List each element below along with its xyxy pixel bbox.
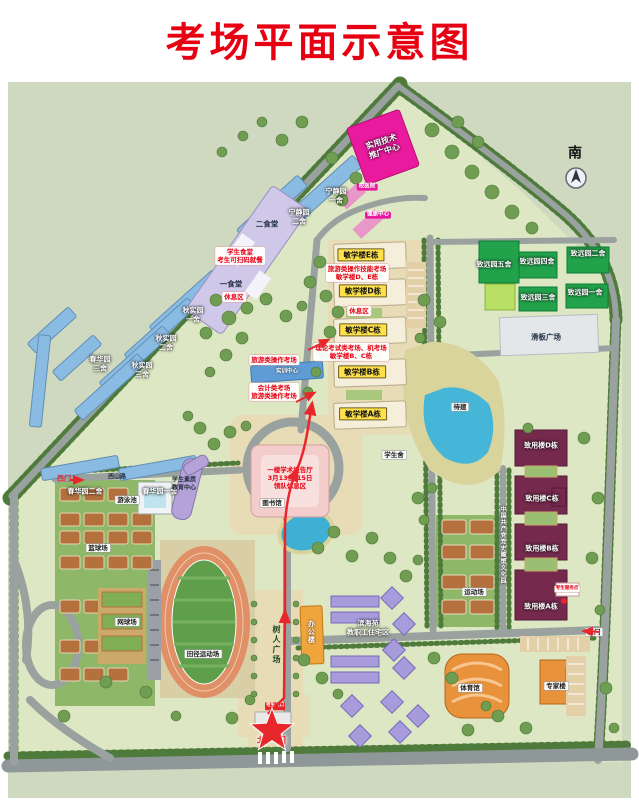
campus-map: 学生食堂 考生可扫码就餐休息区实用技术 推广中心校医院健康中心宁静园 二舍宁静园… [0,0,639,804]
north-gate-star [250,708,294,750]
exam-route-path [70,340,600,714]
exam-map-poster: 考场平面示意图 [0,0,639,804]
east-gate-arrow [584,631,600,632]
exam-route-overlay [0,0,639,804]
